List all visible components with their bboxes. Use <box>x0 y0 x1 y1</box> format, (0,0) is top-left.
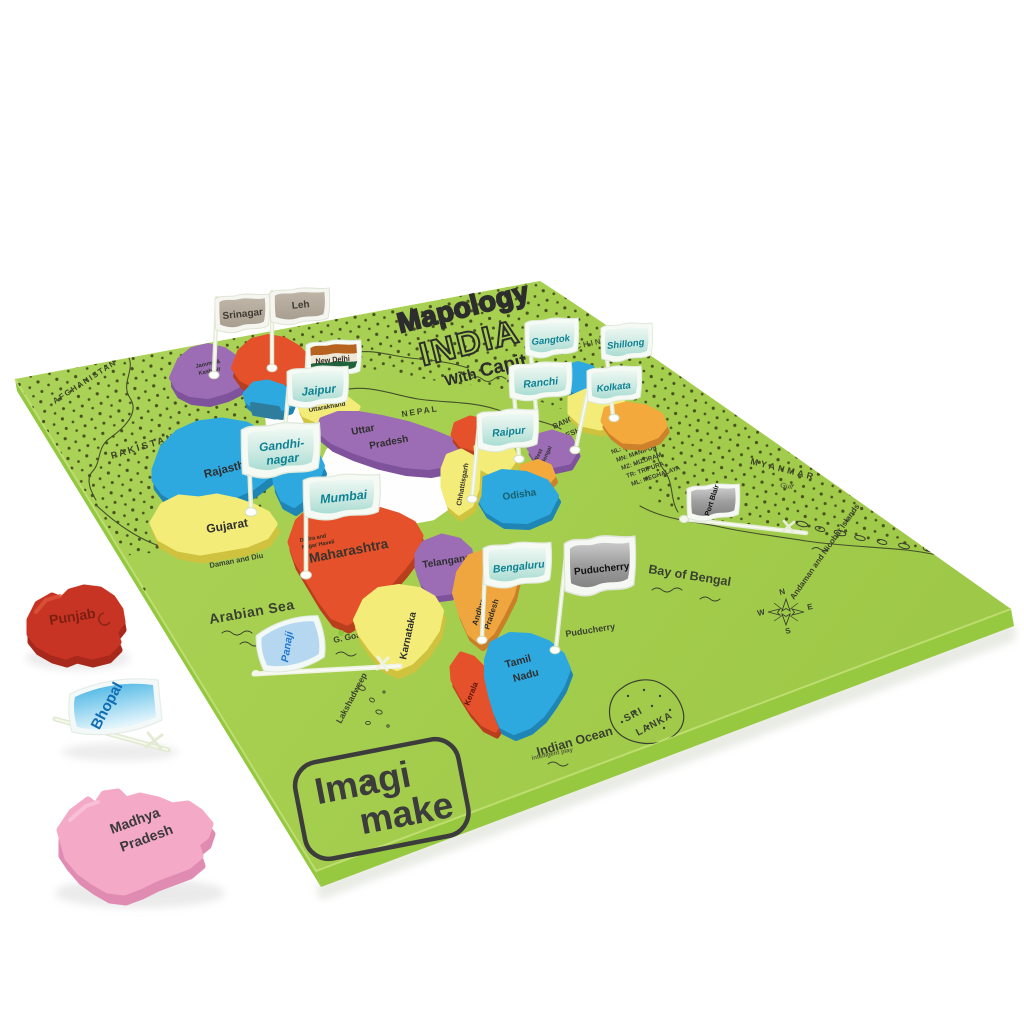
svg-text:Leh: Leh <box>291 299 310 312</box>
